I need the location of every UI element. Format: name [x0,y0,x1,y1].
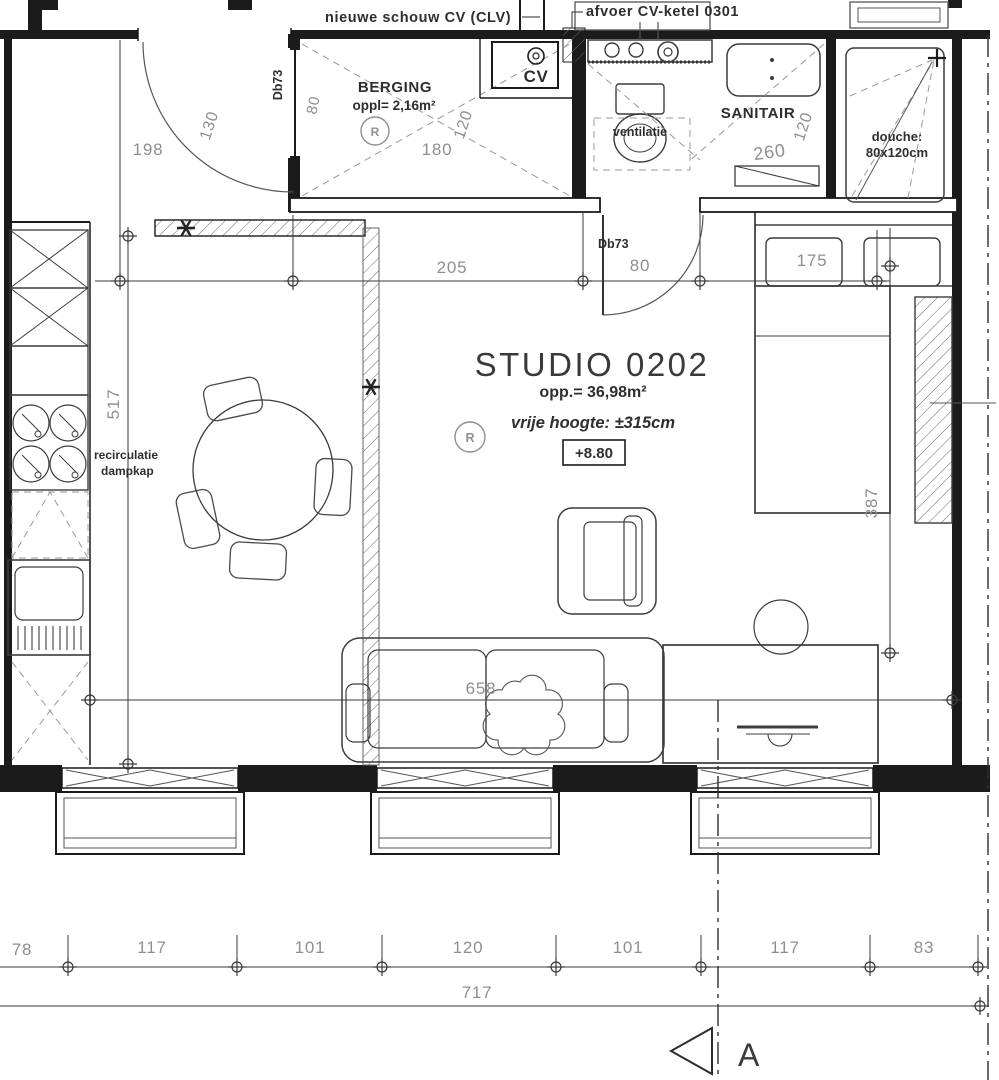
section-label-a: A [738,1037,762,1073]
kitchen-counter [10,230,88,395]
dim-bottom-5: 117 [770,938,800,957]
studio-height: vrije hoogte: ±315cm [511,414,675,432]
detector-r-studio: R [465,431,474,445]
berging-door [290,44,300,162]
berging-name: BERGING [358,79,432,96]
dim-bottom-3: 120 [453,938,484,957]
dim-bottom-1: 117 [137,938,167,957]
douche-label-1: douche: [872,129,923,144]
bed [755,238,940,513]
label-leaders [522,12,583,28]
lavabo-icon [727,44,820,96]
dishwasher-icon [12,492,88,558]
dim-260: 260 [752,140,787,164]
dim-658: 658 [466,679,497,698]
shower-icon [846,48,946,202]
dim-130: 130 [197,109,222,142]
dining-table [175,376,353,581]
interior-walls [4,28,996,765]
stove-icon [10,395,88,490]
studio-title: STUDIO 0202 [475,346,710,383]
dim-517: 517 [104,389,123,420]
dim-80-berging: 80 [303,94,323,115]
studio-door [603,215,703,315]
floor-plan-page: nieuwe schouw CV (CLV) afvoer CV-ketel 0… [0,0,999,1080]
dim-120-berging: 120 [451,108,476,141]
sink-icon [8,560,90,760]
dim-bottom-6: 83 [914,938,935,957]
window-1 [56,768,244,854]
dim-175: 175 [797,251,828,270]
hood-label-2: dampkap [101,464,154,478]
door-code-studio: Db73 [598,237,629,251]
radiator-icon [735,166,819,186]
dim-bottom-4: 101 [613,938,644,957]
door-code-berging: Db73 [271,70,285,101]
douche-label-2: 80x120cm [866,145,928,160]
dim-387: 387 [862,488,881,519]
floor-plan-drawing: nieuwe schouw CV (CLV) afvoer CV-ketel 0… [0,0,999,1080]
desk [663,600,878,763]
level-label: +8.80 [575,445,613,462]
chimney-note: nieuwe schouw CV (CLV) [325,10,511,26]
berging-area: oppl= 2,16m² [353,98,436,113]
washbasin-counter [588,22,712,62]
dim-total-717: 717 [462,983,493,1002]
ventilatie-label: ventilatie [613,125,667,139]
section-marker-a [671,1028,712,1074]
dim-198: 198 [133,140,164,159]
detector-r-berging: R [371,125,380,139]
dim-180: 180 [422,140,453,159]
dim-205: 205 [437,258,468,277]
cv-label: CV [524,67,549,86]
studio-area: opp.= 36,98m² [539,384,646,401]
sanitair-label: SANITAIR [721,105,796,122]
flue-note: afvoer CV-ketel 0301 [586,4,739,20]
dim-80-door: 80 [630,256,651,275]
window-2 [371,768,559,854]
dim-bottom-0: 78 [12,940,33,959]
light-point-icon [177,220,380,395]
armchair [558,508,656,614]
hood-label-1: recirculatie [94,448,158,462]
dim-bottom-2: 101 [295,938,326,957]
window-3 [691,768,879,854]
wardrobe [915,297,952,523]
